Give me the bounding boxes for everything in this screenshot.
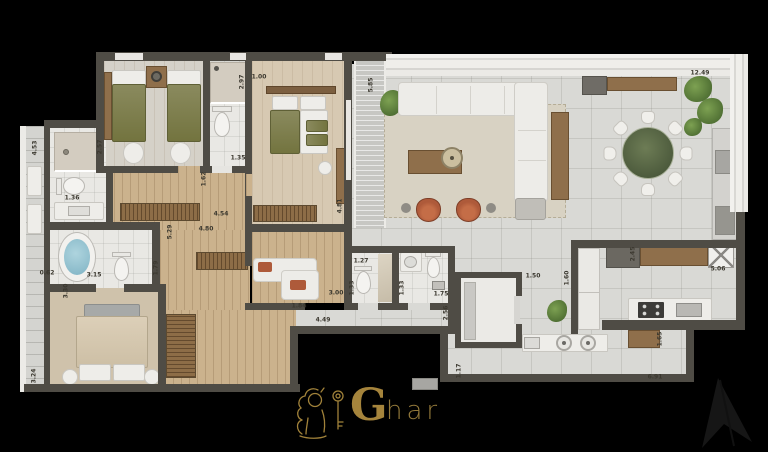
dimension-label: 3.15: [87, 272, 102, 279]
brand-wordmark-har: har: [386, 398, 441, 424]
dimension-label: 1.35: [231, 155, 246, 162]
dimension-label: 1.75: [434, 291, 449, 298]
dimension-label: 4.54: [214, 211, 229, 218]
dimension-label: 1.33: [399, 281, 406, 296]
dimension-label: 5.06: [711, 266, 726, 273]
dimension-label: 5.29: [167, 225, 174, 240]
dimension-label: 2.45: [630, 247, 637, 262]
dimension-label: 6.91: [648, 374, 663, 381]
dimension-label: 1.27: [354, 258, 369, 265]
dimension-label: 0.62: [40, 270, 55, 277]
dimension-label: 4.81: [337, 199, 344, 214]
dimension-label: 3.24: [31, 369, 38, 384]
dimension-label: 4.53: [32, 141, 39, 156]
dimension-label: 1.79: [153, 261, 160, 276]
dimension-label: 1.65: [657, 332, 664, 347]
dimension-label: 2.57: [97, 140, 104, 155]
dimension-label: 1.00: [252, 74, 267, 81]
north-arrow-icon: [690, 368, 762, 452]
dimension-label: 4.49: [316, 317, 331, 324]
dimension-label: 3.30: [63, 284, 70, 299]
dimension-label: 1.36: [65, 195, 80, 202]
dimension-label: 12.49: [691, 70, 710, 77]
dimension-label: 3.00: [329, 290, 344, 297]
dimension-label: 1.84: [292, 303, 307, 310]
brand-wordmark-g: G: [350, 384, 388, 428]
dimension-label: 1.62: [201, 172, 208, 187]
dimension-label: 1.33: [349, 281, 356, 296]
floor-plan-canvas: 2.572.971.001.351.625.854.814.544.805.29…: [0, 0, 768, 452]
dimension-label: 1.50: [526, 273, 541, 280]
dimension-label: 4.80: [199, 226, 214, 233]
dimension-label: 2.97: [239, 75, 246, 90]
lion-with-key-icon: [288, 386, 348, 442]
dimension-label: 2.56: [443, 306, 450, 321]
dimension-label: 1.17: [456, 364, 463, 379]
dimension-label: 1.60: [564, 271, 571, 286]
brand-logo: G har: [288, 384, 478, 446]
dimension-label: 5.85: [368, 78, 375, 93]
